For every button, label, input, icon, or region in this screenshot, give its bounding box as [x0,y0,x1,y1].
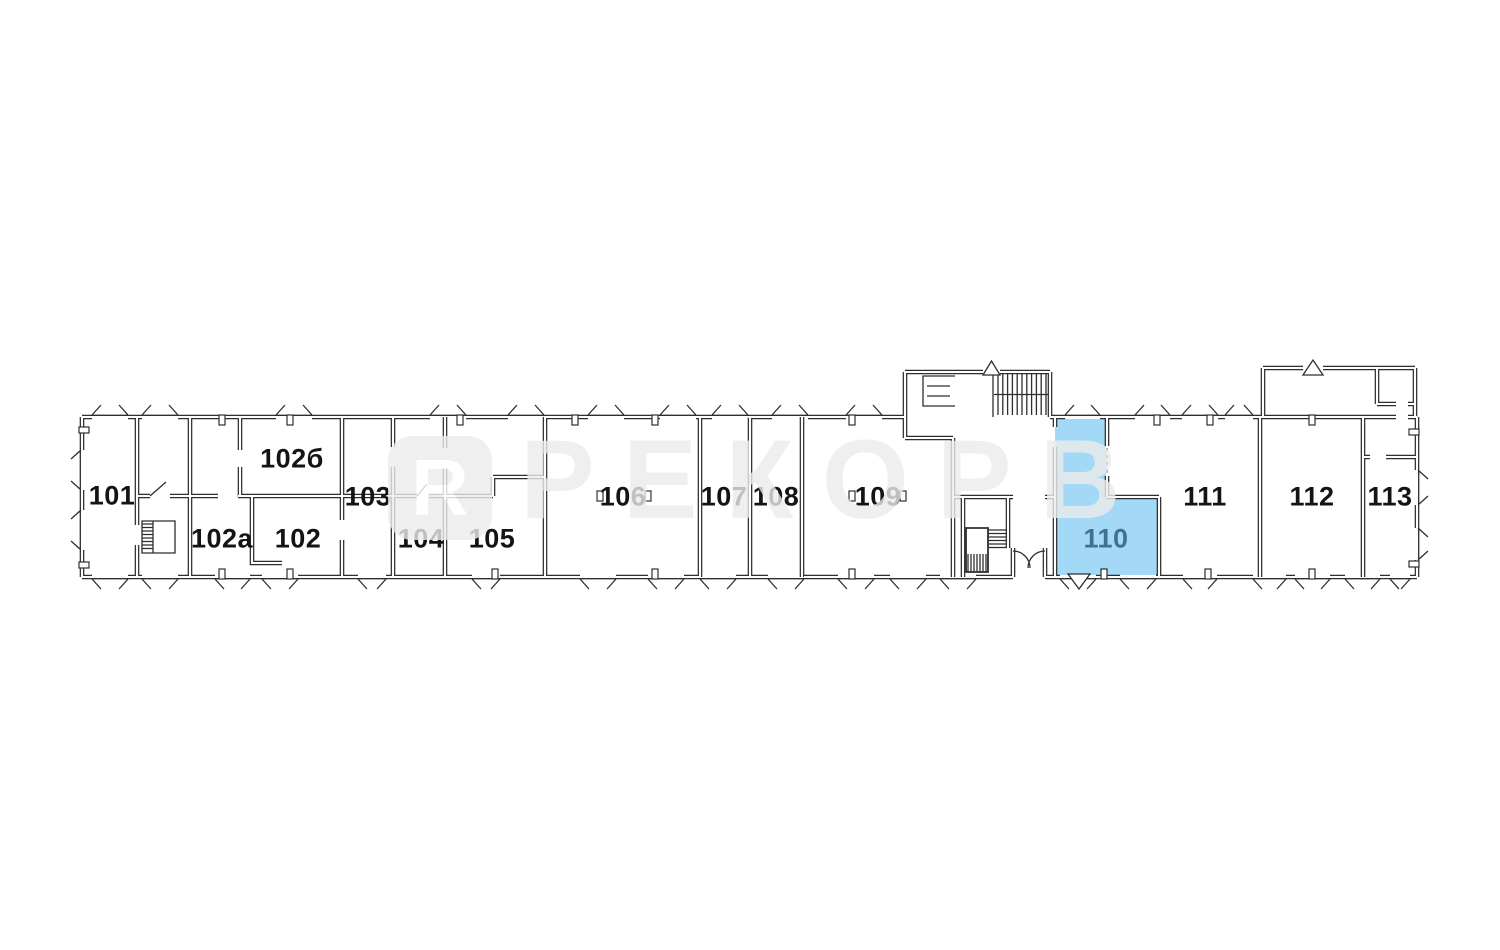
door-marker [1205,569,1211,579]
door-marker [849,415,855,425]
door-marker [457,415,463,425]
room-label-107: 107 [701,482,748,513]
door-marker [287,415,293,425]
floor-plan-stage: 101102а102102б10310410510610710810911011… [0,0,1500,950]
room-label-103: 103 [345,482,392,513]
door-marker [652,569,658,579]
room-label-109: 109 [855,482,902,513]
door-marker [79,562,89,568]
door-marker [1309,569,1315,579]
room-label-105: 105 [469,524,516,555]
door-marker [1409,429,1419,435]
floor-plan-svg [0,0,1500,950]
room-label-102а: 102а [191,524,253,555]
room-label-102б: 102б [260,444,324,475]
room-label-113: 113 [1367,482,1412,513]
door-marker [219,569,225,579]
room-label-110: 110 [1083,524,1128,555]
door-marker [1154,415,1160,425]
room-label-108: 108 [753,482,800,513]
door-marker [79,427,89,433]
entrance-door-arcs [1013,551,1045,568]
room-label-111: 111 [1183,482,1227,513]
door-marker [219,415,225,425]
room-label-106: 106 [600,482,647,513]
room-label-112: 112 [1289,482,1334,513]
door-marker [849,569,855,579]
room-label-104: 104 [398,524,445,555]
door-marker [652,415,658,425]
door-marker [572,415,578,425]
door-marker [1101,569,1107,579]
door-marker [492,569,498,579]
room-label-101: 101 [89,481,136,512]
door-marker [1207,415,1213,425]
door-marker [287,569,293,579]
door-marker [1409,561,1419,567]
door-marker [1309,415,1315,425]
room-label-102: 102 [275,524,322,555]
